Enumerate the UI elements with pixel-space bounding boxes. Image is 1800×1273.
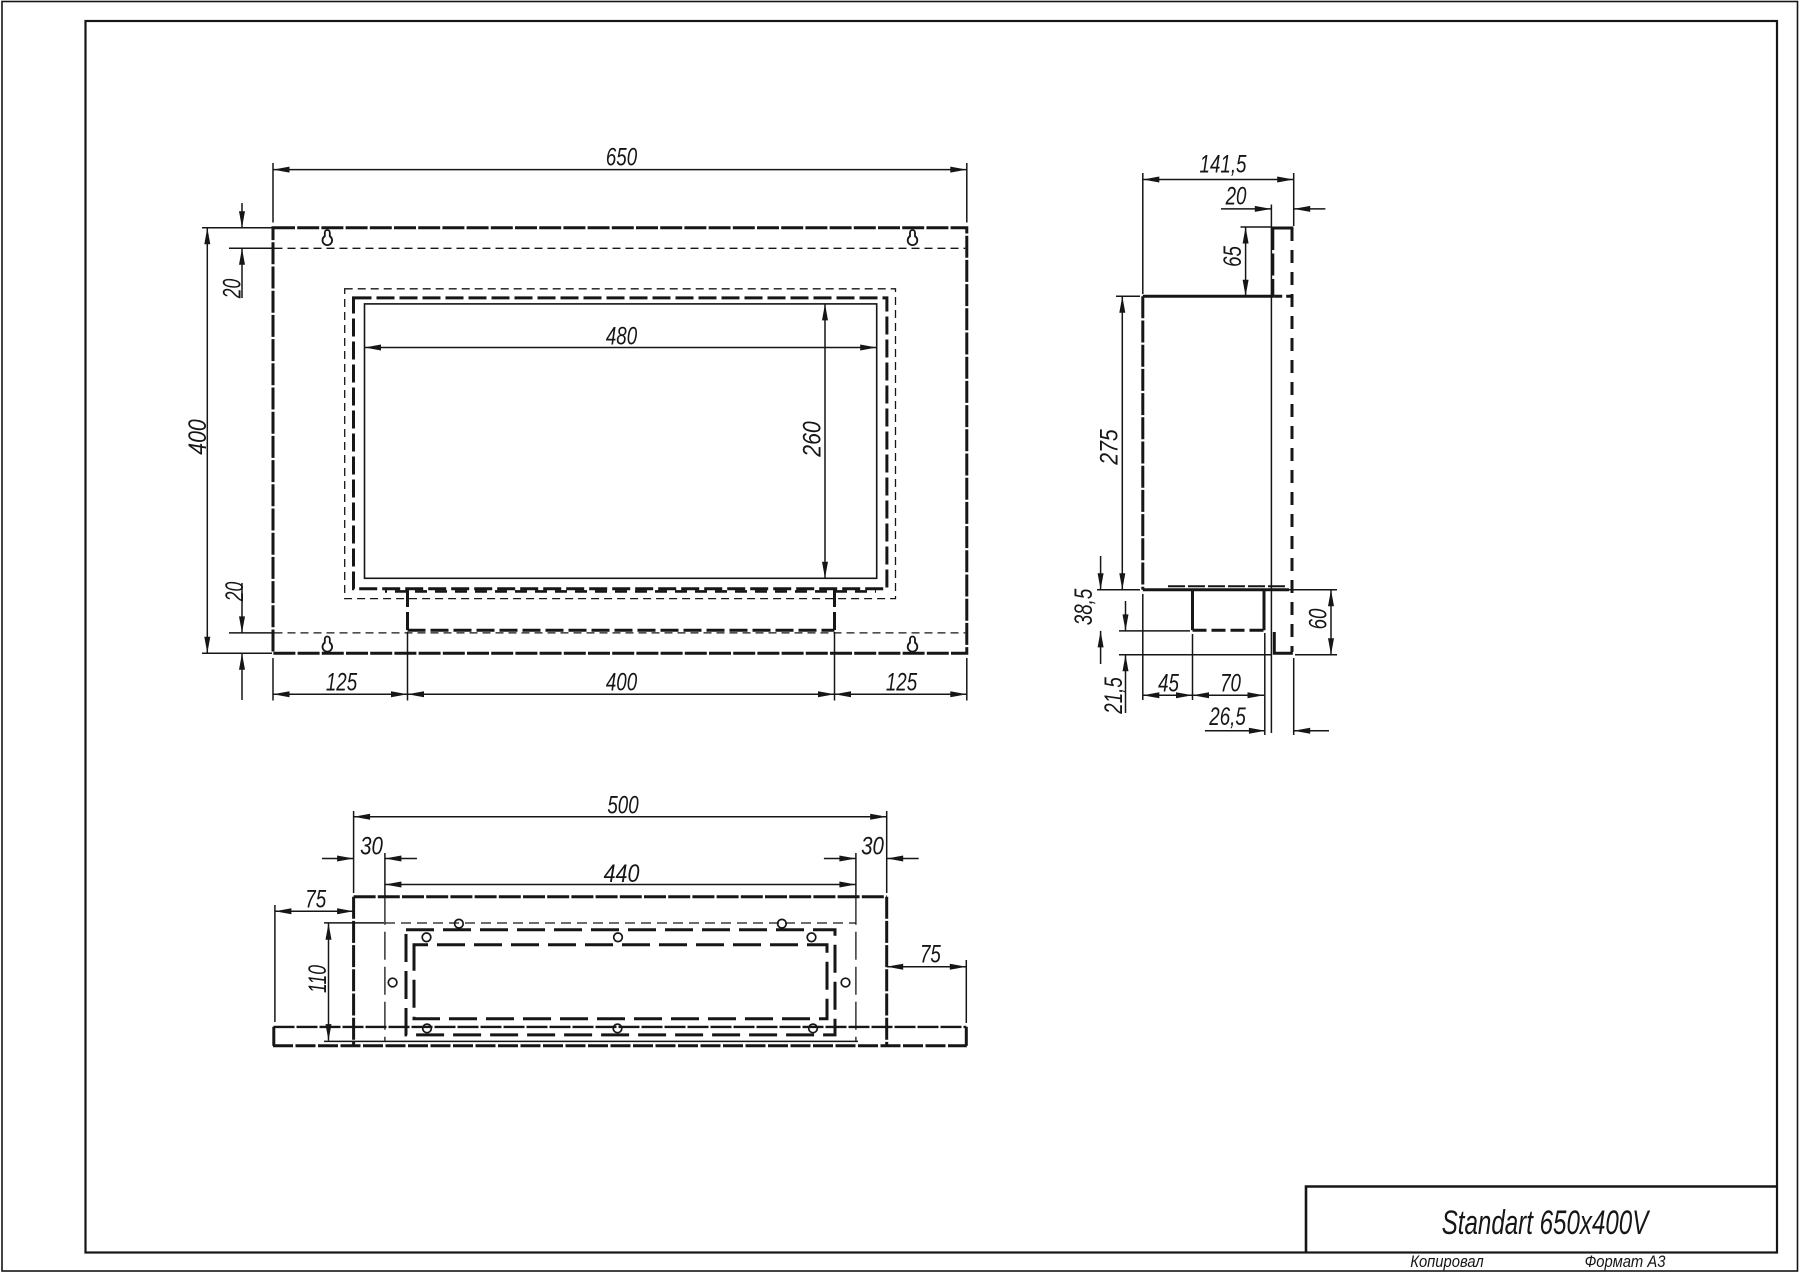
svg-text:400: 400 — [606, 668, 638, 696]
svg-text:500: 500 — [607, 791, 639, 819]
svg-text:650: 650 — [606, 143, 638, 171]
svg-text:Standart 650x400V: Standart 650x400V — [1442, 1204, 1650, 1242]
svg-text:260: 260 — [798, 421, 826, 457]
svg-text:26,5: 26,5 — [1208, 702, 1246, 730]
svg-text:440: 440 — [604, 859, 640, 887]
svg-text:125: 125 — [326, 668, 358, 696]
svg-text:60: 60 — [1304, 608, 1332, 629]
svg-text:20: 20 — [217, 279, 246, 299]
svg-text:38,5: 38,5 — [1069, 588, 1097, 625]
svg-text:20: 20 — [220, 582, 249, 602]
svg-text:75: 75 — [920, 940, 941, 968]
svg-text:400: 400 — [183, 419, 211, 455]
svg-text:65: 65 — [1218, 245, 1246, 266]
svg-text:75: 75 — [305, 885, 326, 913]
svg-text:141,5: 141,5 — [1200, 150, 1247, 178]
svg-text:70: 70 — [1220, 669, 1241, 697]
svg-text:480: 480 — [606, 322, 638, 350]
svg-text:30: 30 — [360, 832, 383, 860]
svg-text:45: 45 — [1158, 669, 1179, 697]
svg-text:Копировал: Копировал — [1410, 1253, 1484, 1271]
svg-text:21,5: 21,5 — [1099, 677, 1127, 715]
svg-text:125: 125 — [886, 668, 918, 696]
svg-text:30: 30 — [861, 832, 884, 860]
svg-text:110: 110 — [303, 965, 332, 993]
svg-text:275: 275 — [1095, 429, 1123, 465]
svg-text:20: 20 — [1225, 182, 1247, 210]
svg-text:Формат А3: Формат А3 — [1585, 1253, 1666, 1271]
